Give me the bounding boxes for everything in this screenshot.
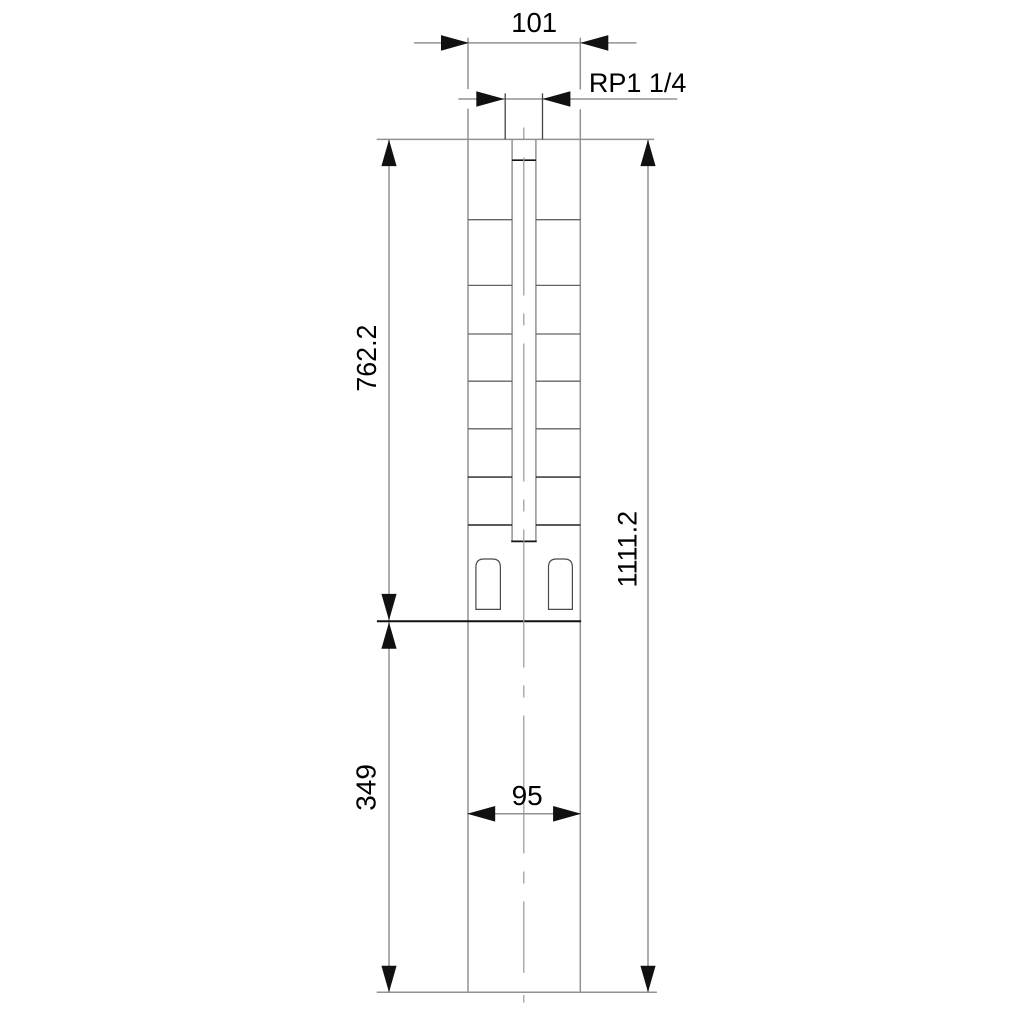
svg-text:RP1 1/4: RP1 1/4 <box>589 68 687 98</box>
svg-text:762.2: 762.2 <box>351 325 382 392</box>
svg-text:101: 101 <box>511 7 557 38</box>
svg-text:95: 95 <box>512 780 543 811</box>
svg-text:1111.2: 1111.2 <box>613 511 643 588</box>
svg-text:349: 349 <box>351 764 382 811</box>
